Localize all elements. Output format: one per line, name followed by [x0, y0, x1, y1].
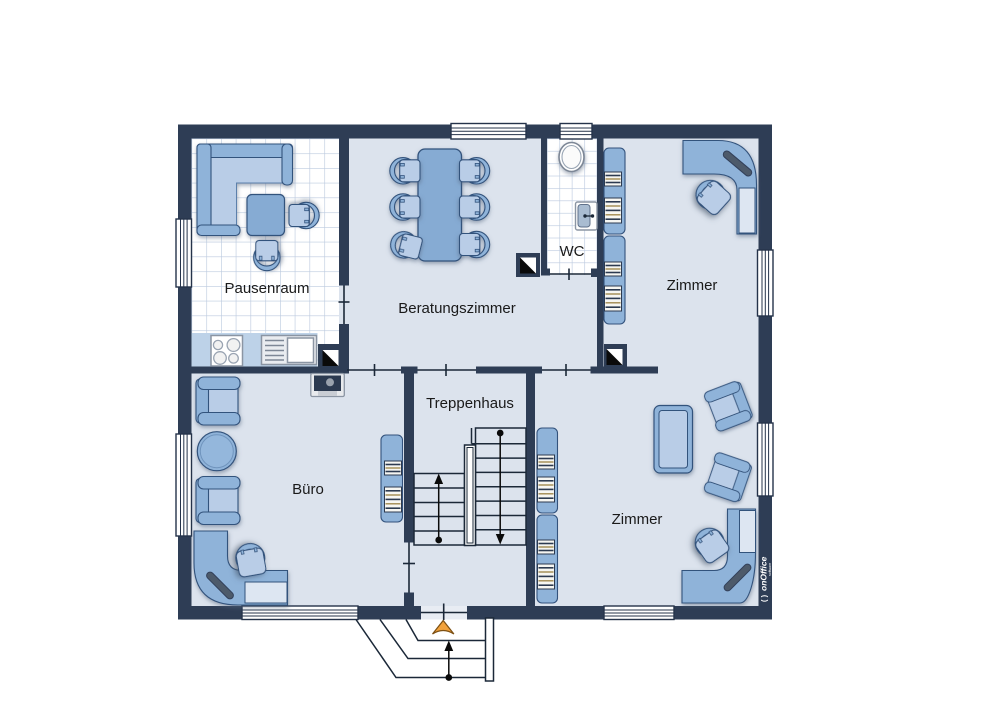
svg-text:Zimmer: Zimmer — [667, 277, 718, 294]
svg-text:Beratungszimmer: Beratungszimmer — [398, 300, 516, 317]
svg-text:Büro: Büro — [292, 481, 324, 498]
svg-text:( ): ( ) — [760, 594, 769, 602]
svg-text:onOffice: onOffice — [759, 556, 769, 591]
svg-text:Zimmer: Zimmer — [612, 511, 663, 528]
svg-text:Treppenhaus: Treppenhaus — [426, 395, 514, 412]
svg-text:software: software — [768, 563, 772, 576]
svg-text:Pausenraum: Pausenraum — [224, 280, 309, 297]
svg-text:WC: WC — [560, 243, 585, 260]
